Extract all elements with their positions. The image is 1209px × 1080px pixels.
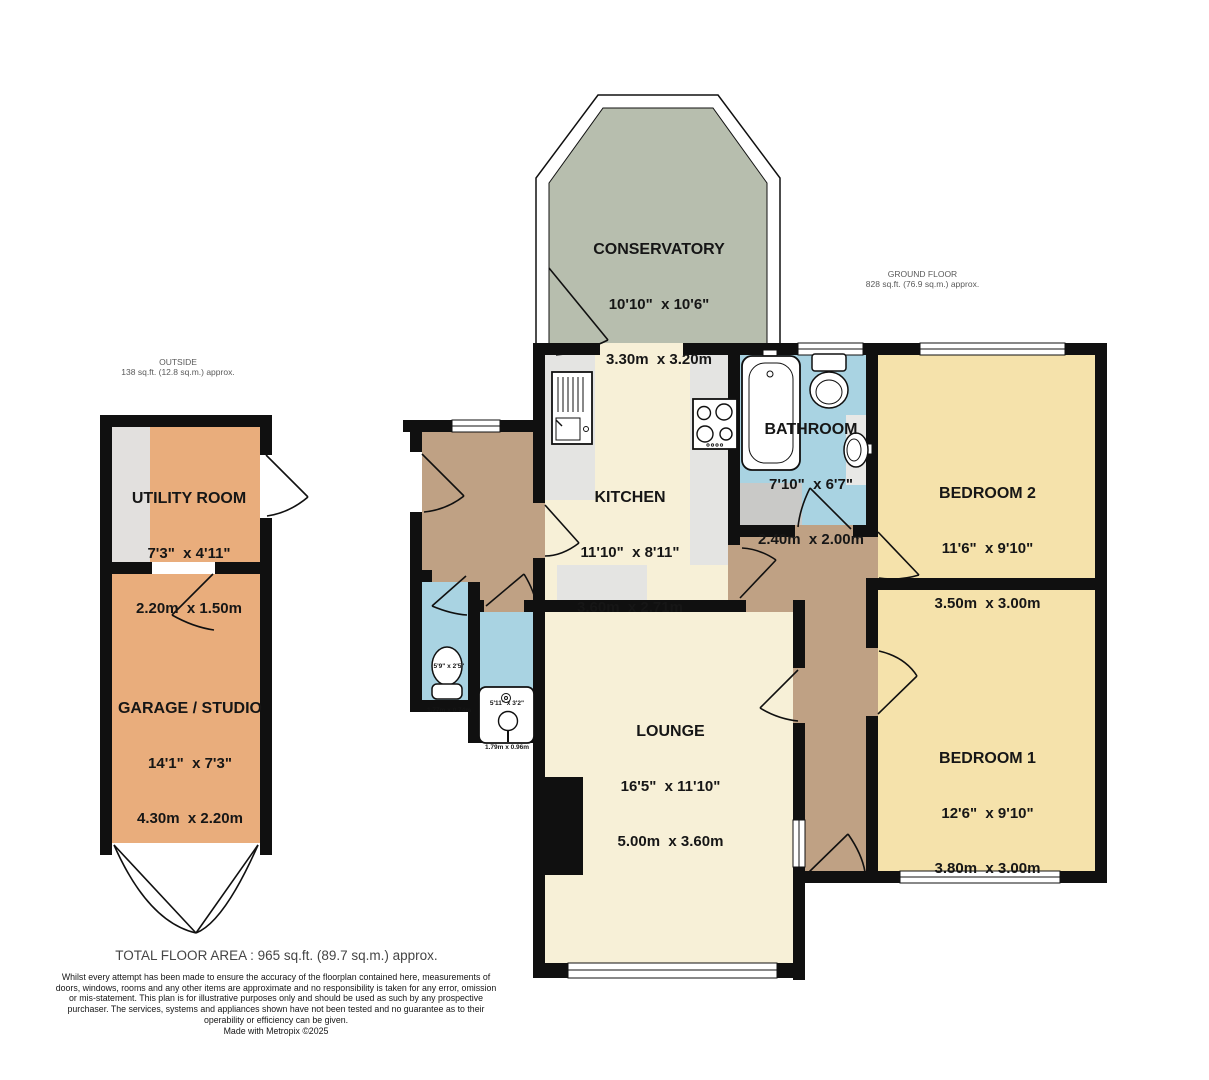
outside-area-label: OUTSIDE 138 sq.ft. (12.8 sq.m.) approx. [88, 357, 268, 377]
disclaimer: Whilst every attempt has been made to en… [52, 972, 500, 1036]
window [920, 343, 1065, 355]
metropix-credit: Made with Metropix ©2025 [52, 1026, 500, 1037]
ground-floor-area-label: GROUND FLOOR 828 sq.ft. (76.9 sq.m.) app… [820, 269, 1025, 289]
bedroom1-label: BEDROOM 1 12'6" x 9'10" 3.80m x 3.00m [880, 713, 1095, 896]
garage-label: GARAGE / STUDIO 14'1" x 7'3" 4.30m x 2.2… [95, 663, 285, 846]
garage-double-doors [114, 845, 258, 933]
conservatory-label: CONSERVATORY 10'10" x 10'6" 3.30m x 3.20… [539, 204, 779, 387]
shower-label: 5'11" x 3'2" 1.79m x 0.96m [475, 664, 539, 769]
bathroom-label: BATHROOM 7'10" x 6'7" 2.40m x 2.00m [732, 384, 890, 567]
window [452, 420, 500, 432]
floorplan: OUTSIDE 138 sq.ft. (12.8 sq.m.) approx. … [0, 0, 1209, 1080]
utility-label: UTILITY ROOM 7'3" x 4'11" 2.20m x 1.50m [100, 453, 278, 636]
window [793, 820, 805, 867]
bedroom2-label: BEDROOM 2 11'6" x 9'10" 3.50m x 3.00m [880, 448, 1095, 631]
hallway-corridor [805, 612, 866, 871]
lounge-label: LOUNGE 16'5" x 11'10" 5.00m x 3.60m [558, 686, 783, 869]
window [798, 343, 863, 355]
hob-icon [693, 399, 737, 449]
window [568, 963, 777, 978]
wc-label: 5'9" x 2'5" 1.77m x 0.74m [422, 627, 476, 732]
kitchen-label: KITCHEN 11'10" x 8'11" 3.60m x 2.71m [520, 452, 740, 635]
total-floor-area: TOTAL FLOOR AREA : 965 sq.ft. (89.7 sq.m… [55, 948, 498, 963]
disclaimer-text: Whilst every attempt has been made to en… [52, 972, 500, 1026]
